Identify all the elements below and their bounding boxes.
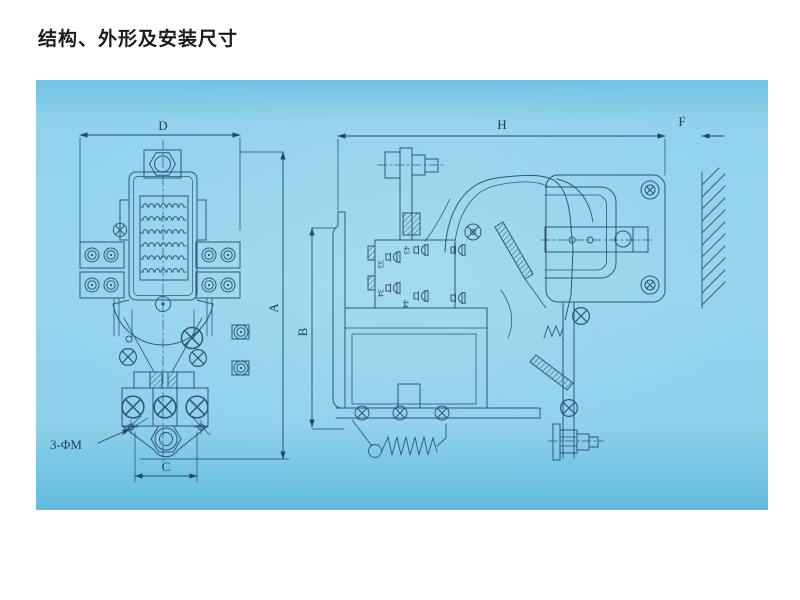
terminal-bar [541,227,652,252]
arc-chute-front [113,172,206,300]
dim-label-d: D [158,118,167,133]
flexible-connector [530,355,573,390]
terminal-label-44: 44 [401,300,410,308]
rear-plate [541,175,665,302]
dim-label-h: H [497,117,506,132]
terminal-label-43: 43 [402,246,411,254]
lower-terminal-assembly [544,302,604,460]
coil-housing [345,308,487,408]
arc-chute-side [425,175,593,390]
dimensions: D A B C H [50,114,724,482]
aux-screw-icon [451,245,465,256]
top-bolt [144,150,181,178]
moving-contact-arm [495,222,533,279]
aux-screw-icon [451,293,465,304]
drawing-panel: 43 33 34 44 [36,80,768,510]
aux-screw-icon [414,291,428,302]
dim-h: H [338,117,665,210]
dim-label-a: A [266,303,281,313]
aux-screw-icon [386,252,400,263]
dim-label-f: F [678,114,685,129]
mounting-wall [702,168,725,308]
side-view: 43 33 34 44 [333,148,665,460]
plate-screw-icon [641,276,659,294]
neck [134,372,194,388]
plate-screw-icon [641,181,659,199]
dim-a: A [140,152,289,459]
dim-label-b: B [295,327,310,336]
dim-b: B [295,228,344,429]
aux-contact-block: 43 33 34 44 [368,240,465,308]
page-title: 结构、外形及安装尺寸 [38,24,238,51]
main-terminals [80,242,249,375]
chute-screw-icon [465,224,481,240]
mounting-holes-label: 3-ΦM [50,437,82,452]
dim-label-c: C [162,459,171,474]
terminal-label-34: 34 [376,289,385,297]
return-spring [352,420,446,458]
front-view [80,140,249,464]
terminal-label-33: 33 [376,260,385,268]
aux-screw-icon [386,283,400,294]
aux-screw-icon [414,245,428,256]
technical-drawing: 43 33 34 44 [36,80,768,510]
dim-d: D [80,118,240,242]
top-terminal-bolt [378,148,444,240]
dim-f: F [643,114,724,136]
